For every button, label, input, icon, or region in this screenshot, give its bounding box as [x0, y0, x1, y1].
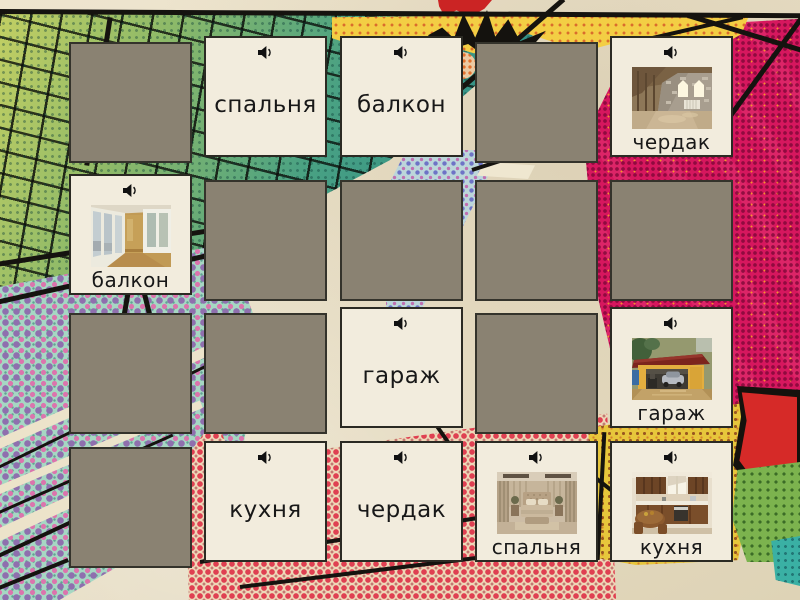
memory-card-face-down[interactable]	[204, 313, 327, 434]
card-word-label: балкон	[342, 64, 461, 155]
card-image-label: чердак	[633, 129, 711, 155]
memory-card-word[interactable]: гараж	[340, 307, 463, 428]
bedroom-photo	[497, 472, 577, 534]
card-word-label: спальня	[206, 64, 325, 155]
card-word-label: гараж	[342, 335, 461, 426]
memory-card-face-down[interactable]	[204, 180, 327, 301]
card-image-label: спальня	[492, 534, 582, 560]
memory-card-image[interactable]: гараж	[610, 307, 733, 428]
kitchen-photo	[632, 472, 712, 534]
memory-card-word[interactable]: балкон	[340, 36, 463, 157]
memory-card-image[interactable]: кухня	[610, 441, 733, 562]
speaker-icon[interactable]	[393, 45, 410, 64]
balcony-photo	[91, 205, 171, 267]
card-image-label: кухня	[640, 534, 703, 560]
memory-card-face-down[interactable]	[475, 42, 598, 163]
speaker-icon[interactable]	[257, 450, 274, 469]
card-image-label: балкон	[92, 267, 170, 293]
garage-photo	[632, 338, 712, 400]
speaker-icon[interactable]	[663, 450, 680, 469]
memory-card-face-down[interactable]	[475, 313, 598, 434]
memory-card-word[interactable]: чердак	[340, 441, 463, 562]
speaker-icon[interactable]	[393, 316, 410, 335]
memory-card-face-down[interactable]	[340, 180, 463, 301]
memory-card-face-down[interactable]	[69, 447, 192, 568]
memory-card-word[interactable]: кухня	[204, 441, 327, 562]
memory-card-face-down[interactable]	[475, 180, 598, 301]
memory-card-face-down[interactable]	[69, 42, 192, 163]
memory-card-face-down[interactable]	[69, 313, 192, 434]
card-word-label: чердак	[342, 469, 461, 560]
speaker-icon[interactable]	[393, 450, 410, 469]
card-image-label: гараж	[637, 400, 705, 426]
speaker-icon[interactable]	[663, 45, 680, 64]
speaker-icon[interactable]	[528, 450, 545, 469]
memory-card-face-down[interactable]	[610, 180, 733, 301]
memory-card-word[interactable]: спальня	[204, 36, 327, 157]
speaker-icon[interactable]	[663, 316, 680, 335]
speaker-icon[interactable]	[257, 45, 274, 64]
attic-photo	[632, 67, 712, 129]
card-word-label: кухня	[206, 469, 325, 560]
memory-card-image[interactable]: чердак	[610, 36, 733, 157]
game-stage: спальня балкон	[0, 0, 800, 600]
memory-card-image[interactable]: балкон	[69, 174, 192, 295]
memory-card-image[interactable]: спальня	[475, 441, 598, 562]
speaker-icon[interactable]	[122, 183, 139, 202]
